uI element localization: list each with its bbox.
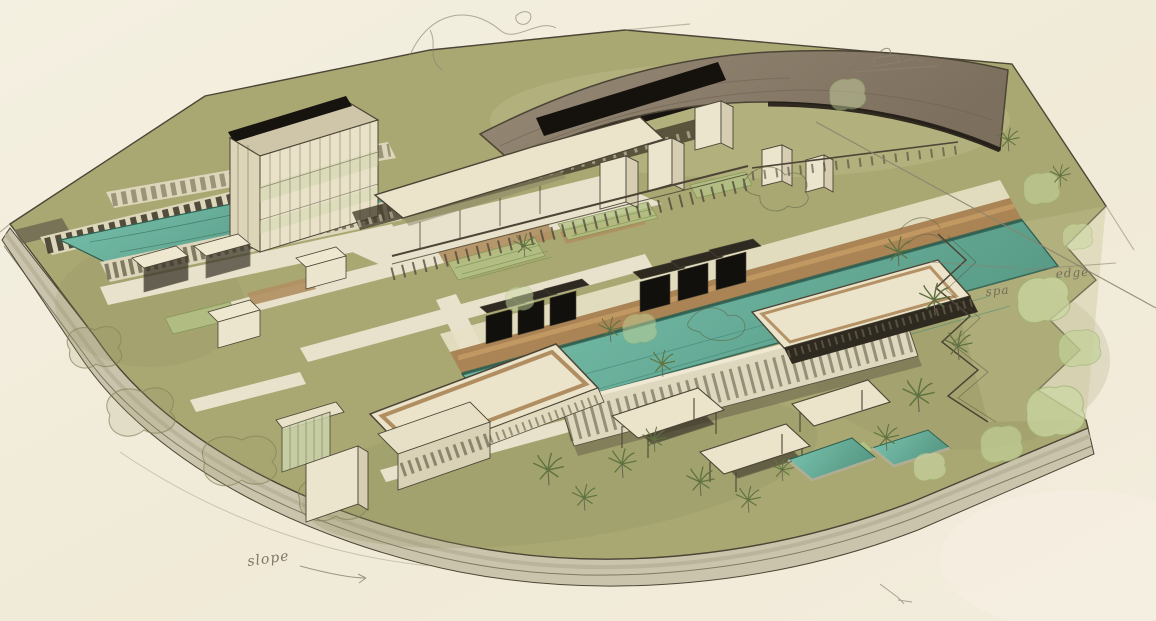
- annotation-spa: spa: [985, 283, 1010, 299]
- annotation-edge: edge: [1055, 265, 1089, 281]
- resort-masterplan-sketch: slope spa edge: [0, 0, 1156, 621]
- sketch-canvas: slope spa edge: [0, 0, 1156, 621]
- tower: [695, 101, 733, 150]
